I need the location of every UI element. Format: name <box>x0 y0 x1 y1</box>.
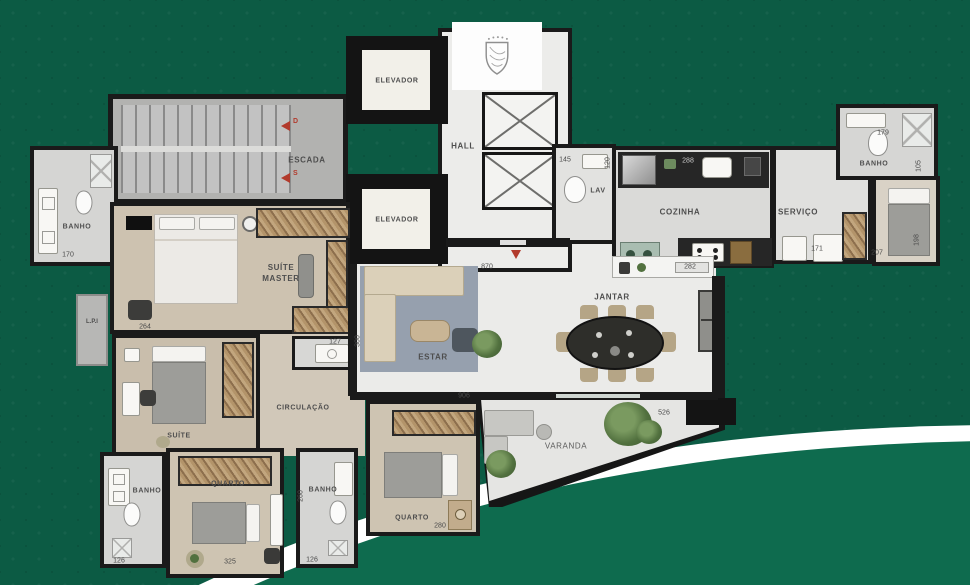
label-estar: ESTAR <box>418 353 448 362</box>
dim-bath-bl: 126 <box>113 558 125 565</box>
suite2-chair <box>140 390 156 406</box>
wall-living-left <box>348 264 357 396</box>
kitchen-fridge <box>622 155 656 185</box>
dim-living-bottom: 906 <box>458 393 470 400</box>
lpi-shaft <box>76 294 108 366</box>
dim-service-wardrobe: 207 <box>871 250 883 257</box>
crest-logo-icon <box>479 33 515 79</box>
dim-bath-aux-side: 300 <box>355 335 362 347</box>
bath-bm-toilet <box>330 501 347 525</box>
brand-plaque <box>452 22 542 90</box>
suite2-bed <box>152 362 206 424</box>
bedroom1-chair <box>264 548 280 564</box>
dim-bath-aux-sink: 127 <box>329 339 341 346</box>
suite2-desk <box>122 382 140 416</box>
suite2-nightstand <box>124 348 140 362</box>
dining-chair <box>608 368 626 382</box>
dining-chair <box>636 368 654 382</box>
label-elevador-2: ELEVADOR <box>375 217 418 224</box>
dim-reversible-side: 198 <box>914 234 921 246</box>
dim-bath-master: 170 <box>62 252 74 259</box>
bedroom1-desk <box>270 494 283 546</box>
label-elevador-1: ELEVADOR <box>375 78 418 85</box>
kitchen-oven <box>744 157 761 176</box>
entry-arrow-icon <box>511 250 521 259</box>
label-servico: SERVIÇO <box>778 208 818 217</box>
label-banho-tr: BANHO <box>860 161 889 168</box>
room-bath-master <box>30 146 118 266</box>
wall-balcony <box>350 392 718 400</box>
service-wardrobe <box>842 212 867 260</box>
stair-arrow-down-label: D <box>293 118 298 125</box>
room-bath-top-right <box>836 104 938 180</box>
service-tank <box>782 236 807 261</box>
shaft-x-icon <box>485 155 555 207</box>
dining-chair <box>662 332 676 352</box>
shaft-x-icon <box>485 95 555 147</box>
dim-bath-bm: 126 <box>306 557 318 564</box>
dining-table <box>566 316 664 370</box>
label-quarto-2: QUARTO <box>395 515 429 522</box>
bath-master-vanity <box>38 188 58 254</box>
dim-bath-bm-side: 260 <box>298 490 305 502</box>
label-lpi: L.P.I <box>86 319 98 325</box>
master-bed <box>154 214 238 304</box>
dim-bath-tr-side: 105 <box>916 160 923 172</box>
master-armchair <box>128 300 152 320</box>
label-varanda: VARANDA <box>545 442 587 451</box>
master-closet-top <box>256 208 350 238</box>
kitchen-decor-plant <box>664 159 676 169</box>
bath-master-toilet <box>76 191 93 215</box>
stair-flight-upper <box>121 105 291 146</box>
label-lav: LAV <box>590 188 605 195</box>
dim-quarto-1: 325 <box>224 559 236 566</box>
dim-bar-counter: 282 <box>684 264 696 271</box>
living-sofa-left <box>364 294 396 362</box>
elevator-shaft-1 <box>482 92 558 150</box>
stair-arrow-up-label: S <box>293 170 298 177</box>
living-coffee-table <box>410 320 450 342</box>
room-bath-bottom-mid <box>296 448 358 568</box>
living-sofa-top <box>364 266 464 296</box>
living-plant <box>472 330 502 358</box>
bedroom2-bed <box>384 452 442 498</box>
dining-chair <box>580 305 598 319</box>
label-suite-2: SUÍTE <box>167 433 191 440</box>
lav-toilet <box>564 176 586 203</box>
dim-master: 264 <box>139 324 151 331</box>
kitchen-wood-cabinet <box>730 241 752 264</box>
bath-tr-shower <box>902 113 932 147</box>
label-escada: ESCADA <box>288 156 325 165</box>
label-cozinha: COZINHA <box>660 208 701 217</box>
label-quarto-1: QUARTO <box>211 481 245 488</box>
bedroom2-vanity <box>448 500 472 530</box>
balcony-plant-mid <box>636 420 662 444</box>
entry-door <box>500 240 526 245</box>
dim-service-washer: 171 <box>811 246 823 253</box>
bar-coffee-machine <box>619 262 630 274</box>
suite2-closet <box>222 342 254 418</box>
bedroom1-bed <box>192 502 246 544</box>
apartment-plan: D S ESCADA HALL ELEVADOR ELEVADOR <box>0 0 970 585</box>
dim-bath-tr-vanity: 179 <box>877 130 889 137</box>
balcony-glass-door <box>556 394 640 398</box>
bath-tr-vanity <box>846 113 886 128</box>
bar-plant <box>637 263 646 272</box>
dining-chair <box>636 305 654 319</box>
label-banho-bl: BANHO <box>133 488 162 495</box>
bedroom1-pouf <box>186 550 204 568</box>
dim-lav-side: 120 <box>605 157 612 169</box>
label-hall: HALL <box>451 142 475 151</box>
dim-living-top: 870 <box>481 264 493 271</box>
bedroom1-bed-pillow <box>246 504 260 542</box>
bedroom2-bed-pillow <box>442 454 458 496</box>
dim-varanda: 526 <box>658 410 670 417</box>
elevator-shaft-2 <box>482 152 558 210</box>
bath-bl-toilet <box>124 503 141 527</box>
bath-aux-sink <box>315 344 349 363</box>
bath-bm-shower <box>328 540 348 556</box>
reversible-bed <box>888 204 930 256</box>
dim-kitchen-counter: 288 <box>682 158 694 165</box>
label-suite-master: SUÍTE MASTER <box>257 263 305 285</box>
label-jantar: JANTAR <box>594 293 629 302</box>
bath-master-shower <box>90 154 112 188</box>
bedroom2-closet <box>392 410 476 436</box>
master-tv <box>126 216 152 230</box>
balcony-planter-box <box>686 398 736 425</box>
label-banho-bm: BANHO <box>309 487 338 494</box>
master-walkin-closet <box>292 306 350 334</box>
kitchen-bar-counter <box>612 256 714 278</box>
balcony-side-table <box>536 424 552 440</box>
floorplan-scene: D S ESCADA HALL ELEVADOR ELEVADOR <box>0 0 970 585</box>
dining-chair <box>580 368 598 382</box>
stair-arrow-down-icon <box>281 121 290 131</box>
balcony-plant-small <box>486 450 516 478</box>
room-bath-bottom-left <box>100 452 166 568</box>
bath-bl-vanity <box>108 468 130 506</box>
suite2-bed-pillow <box>152 346 206 362</box>
wall-right <box>712 276 725 398</box>
stair-arrow-up-icon <box>281 173 290 183</box>
kitchen-sink <box>702 157 732 178</box>
reversible-bed-pillow <box>888 188 930 204</box>
label-banho-master: BANHO <box>63 224 92 231</box>
balcony-sofa <box>484 410 534 436</box>
bath-bl-shower <box>112 538 132 558</box>
room-stairwell: D S <box>108 94 348 204</box>
dim-lav-width: 145 <box>559 157 571 164</box>
room-bath-auxiliary <box>292 336 356 370</box>
label-circulacao: CIRCULAÇÃO <box>276 405 329 412</box>
stair-flight-lower <box>121 152 291 193</box>
dim-quarto-2: 280 <box>434 523 446 530</box>
